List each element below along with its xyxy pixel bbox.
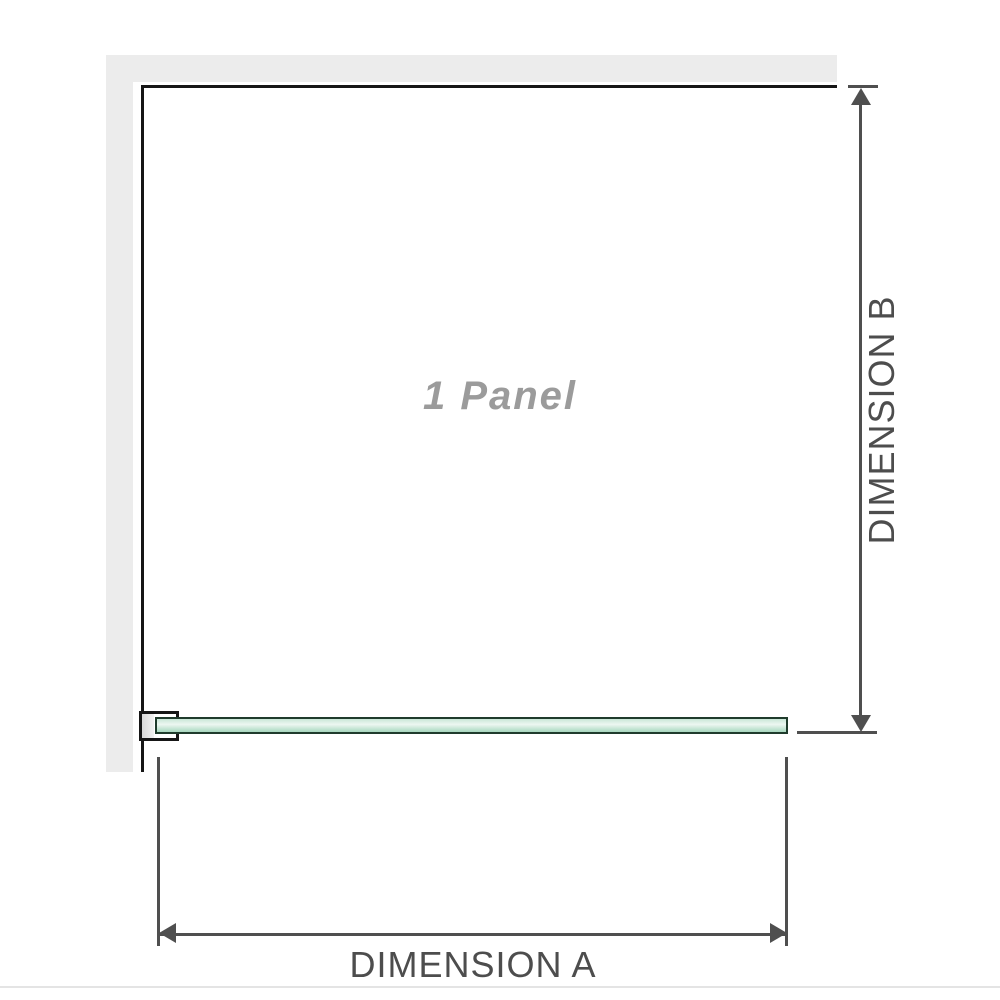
arrow-down-icon	[851, 715, 871, 732]
bottom-divider-line	[0, 986, 1000, 988]
dimension-a-label: DIMENSION A	[303, 944, 643, 986]
arrow-up-icon	[851, 88, 871, 105]
wall-top	[106, 55, 837, 82]
shower-panel-diagram: 1 Panel DIMENSION B DIMENSION A	[0, 0, 1000, 1000]
arrow-left-icon	[159, 923, 176, 943]
dimension-a-left-tick	[157, 757, 160, 946]
dimension-b-label: DIMENSION B	[860, 250, 904, 590]
panel-count-label: 1 Panel	[330, 374, 670, 419]
glass-panel	[155, 717, 788, 734]
wall-left	[106, 55, 133, 772]
wall-left-edge-line	[141, 85, 144, 772]
wall-top-edge-line	[141, 85, 837, 88]
bracket-shade	[142, 714, 154, 738]
dimension-a-right-tick	[785, 757, 788, 946]
dimension-a-line	[160, 933, 787, 936]
arrow-right-icon	[770, 923, 787, 943]
